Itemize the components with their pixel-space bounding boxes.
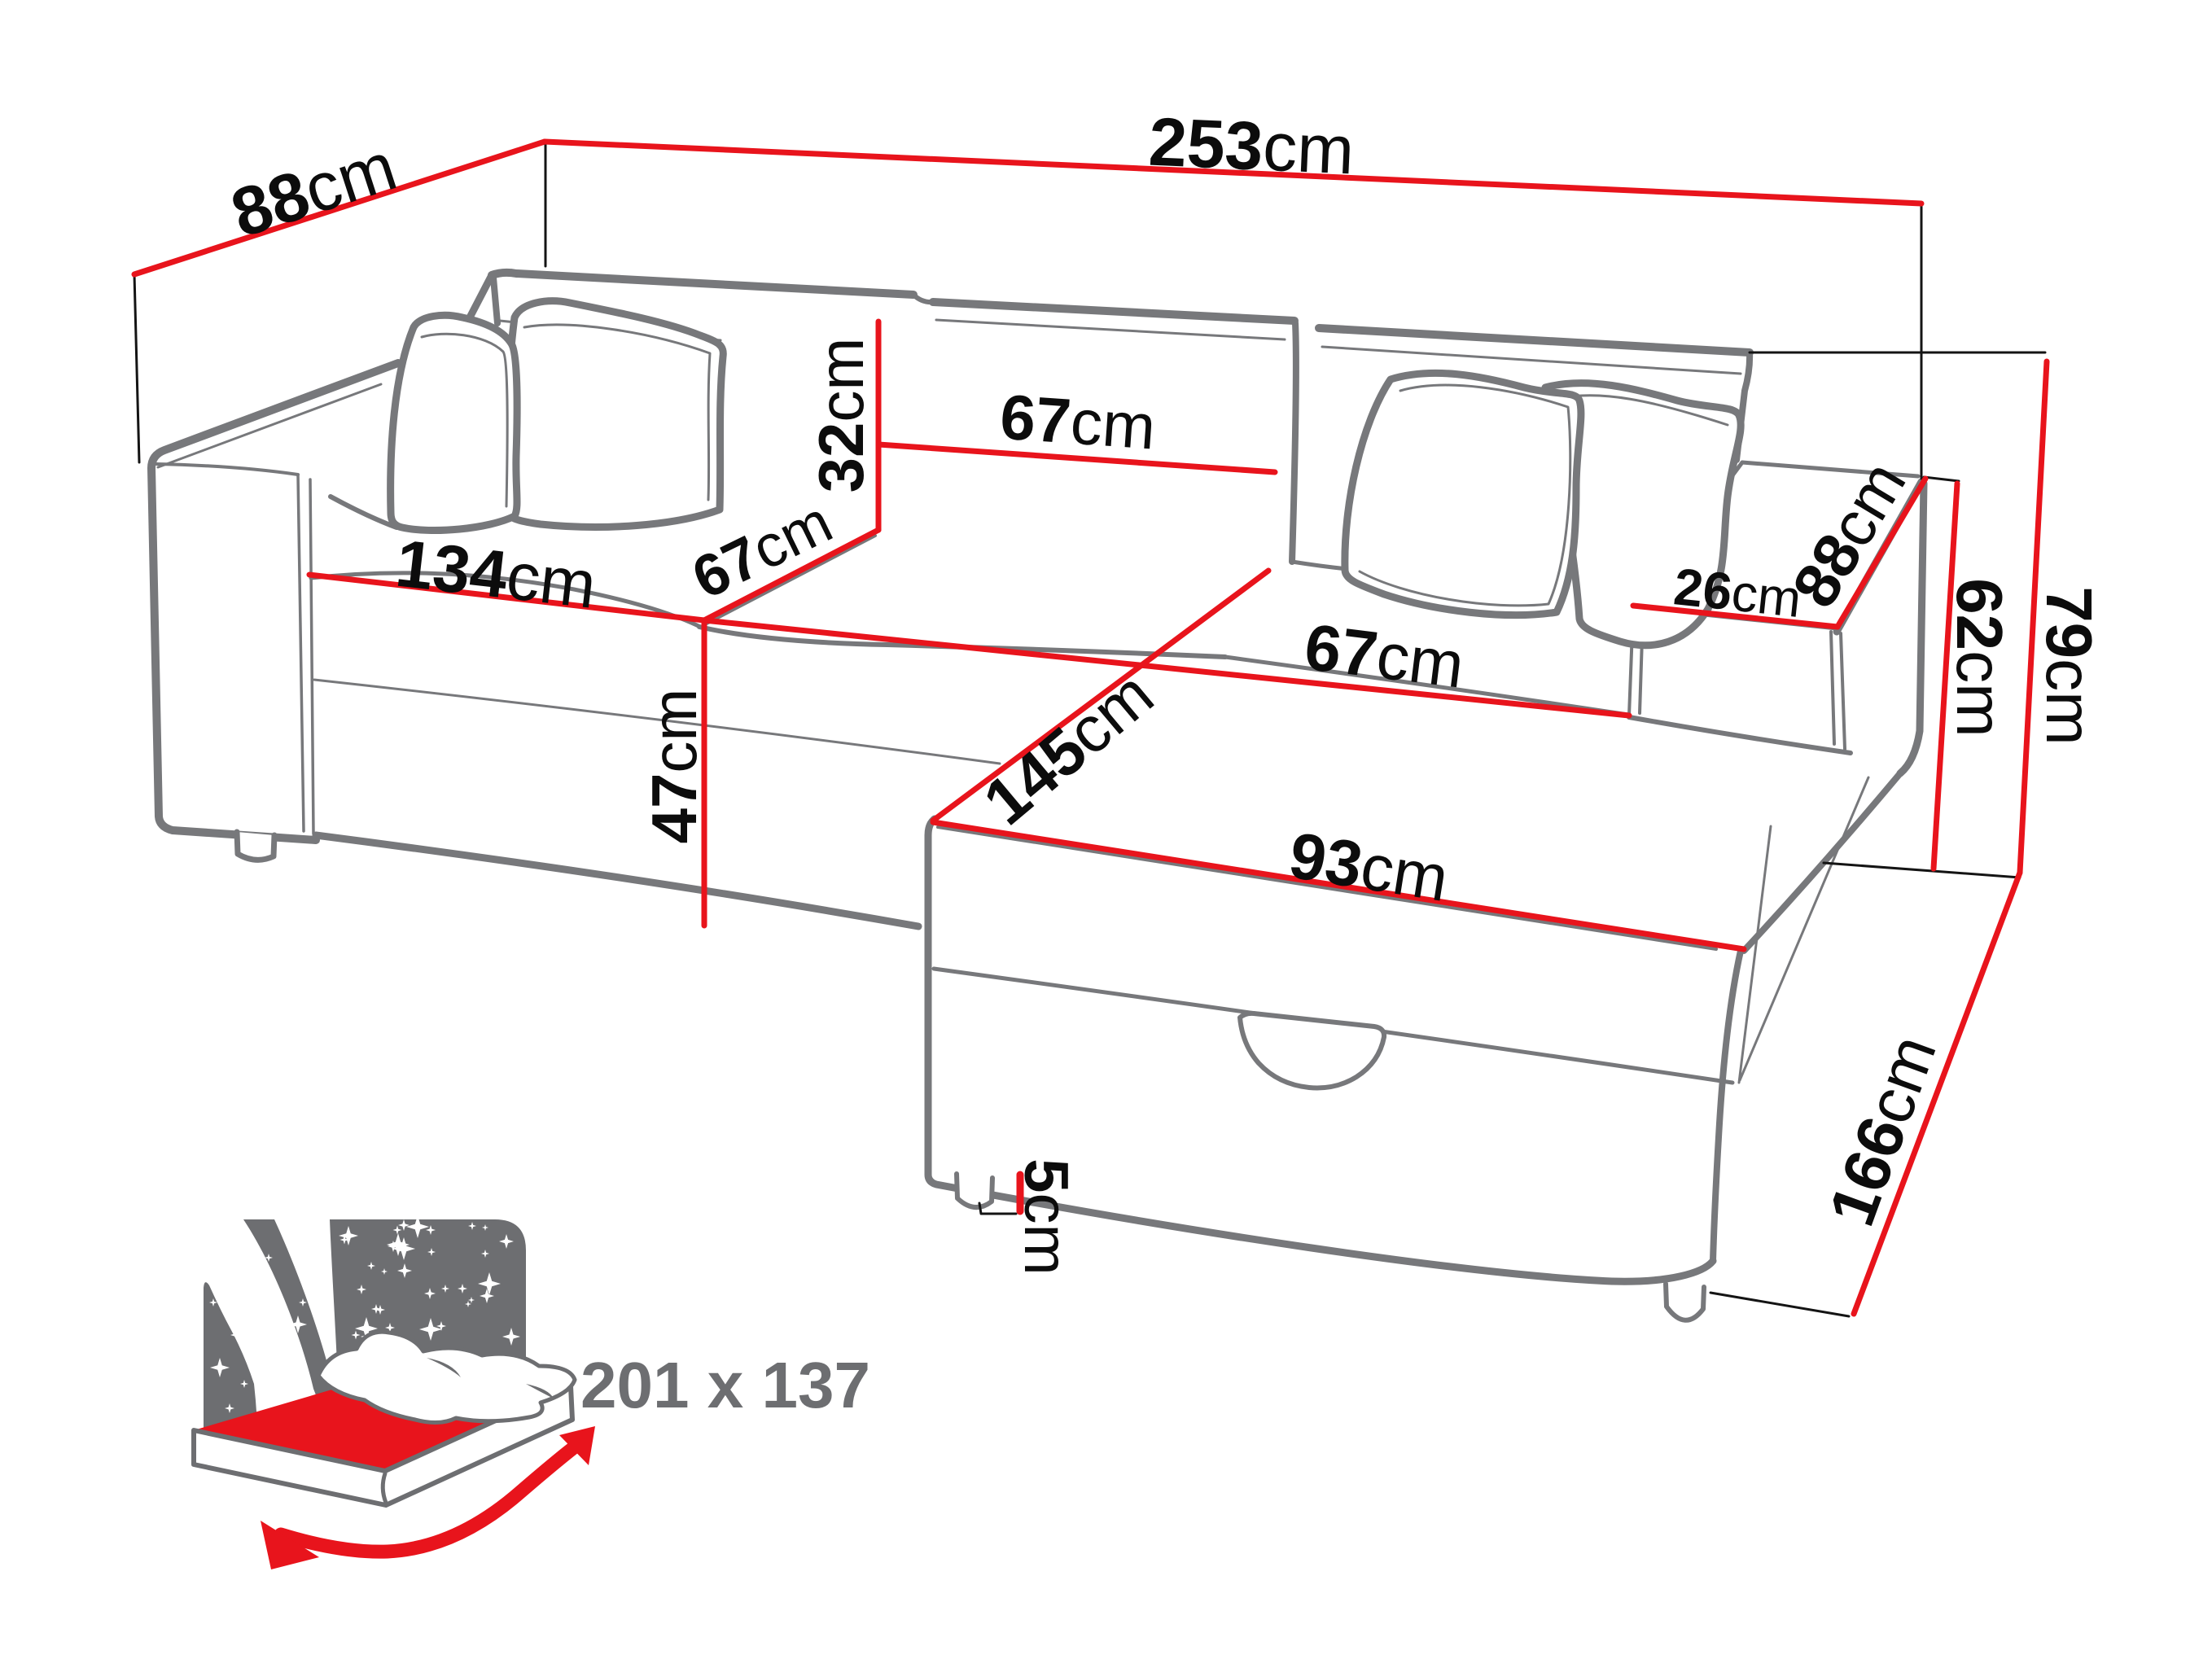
svg-text:253cm: 253cm xyxy=(1147,103,1356,189)
svg-text:79cm: 79cm xyxy=(2033,586,2105,746)
svg-text:5cm: 5cm xyxy=(1011,1158,1080,1276)
svg-text:201 x 137: 201 x 137 xyxy=(580,1349,870,1421)
svg-text:67cm: 67cm xyxy=(998,381,1158,463)
svg-text:62cm: 62cm xyxy=(1943,578,2016,738)
svg-text:32cm: 32cm xyxy=(805,338,877,493)
svg-text:47cm: 47cm xyxy=(638,689,710,844)
